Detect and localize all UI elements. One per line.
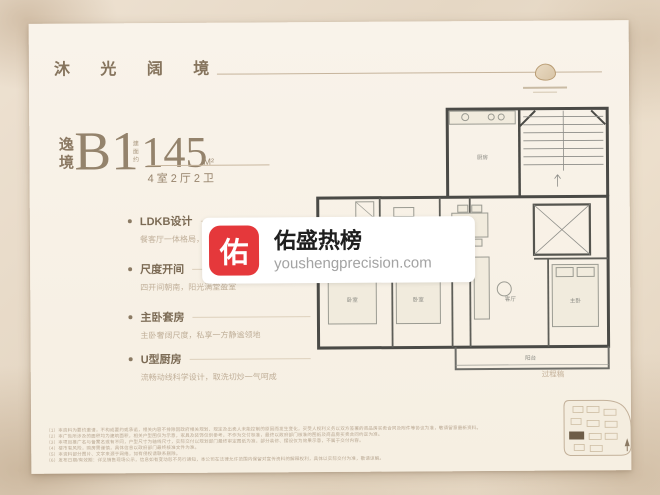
feature-desc: 流畅动线科学设计，取洗切炒一气呵成 [141,371,311,383]
site-map [557,394,637,464]
feature-title: 尺度开间 [140,261,184,277]
unit-code: B1 [74,121,139,181]
brand-emblem-icon [535,64,556,81]
feature-desc: 主卧奢阔尺度，私享一方静谧领地 [141,329,311,341]
bullet-icon [128,219,132,223]
bullet-icon [128,267,132,271]
bullet-icon [128,315,132,319]
unit-series-name: 逸境 [58,137,74,173]
room-label-balcony: 阳台 [525,354,537,362]
elevator [534,204,590,254]
brand-logotype [523,87,567,89]
room-label-master: 主卧 [570,296,582,304]
watermark-app-icon: 佑 [209,225,259,275]
room-label-living: 客厅 [505,295,517,303]
feature-title: LDKB设计 [140,213,193,229]
brand-title: 沐 光 阔 境 [54,55,222,80]
area-prefix-label: 建面约 [130,140,139,164]
stairs [523,110,603,186]
room-label-bedroom2: 卧室 [413,295,425,303]
disclaimer-block: （1）本资料为要约邀请，不构成要约或承诺，相关内容不排除因政府相关规划、规定及出… [46,424,621,464]
poster-card: 沐 光 阔 境 逸境 B1 建面约 145 M² 4室2厅2卫 LDKB设计 餐… [29,20,632,474]
brand-logotype-sub [533,92,557,93]
watermark-title: 佑盛热榜 [274,227,432,253]
room-label-kitchen: 厨房 [477,153,489,161]
draft-watermark-label: 过程稿 [542,369,565,379]
feature-rule [190,358,311,360]
room-label-bedroom1: 卧室 [347,296,359,304]
watermark-url: youshengprecision.com [274,255,432,273]
feature-title: U型厨房 [141,351,182,367]
feature-rule [192,316,310,318]
room-layout-label: 4室2厅2卫 [147,164,269,186]
feature-title: 主卧套房 [140,309,184,325]
feature-item-kitchen: U型厨房 流畅动线科学设计，取洗切炒一气呵成 [129,350,311,383]
highlighted-building [569,431,584,439]
bullet-icon [129,357,133,361]
watermark-badge[interactable]: 佑 佑盛热榜 youshengprecision.com [202,216,475,284]
feature-item-suite: 主卧套房 主卧奢阔尺度，私享一方静谧领地 [128,308,310,341]
